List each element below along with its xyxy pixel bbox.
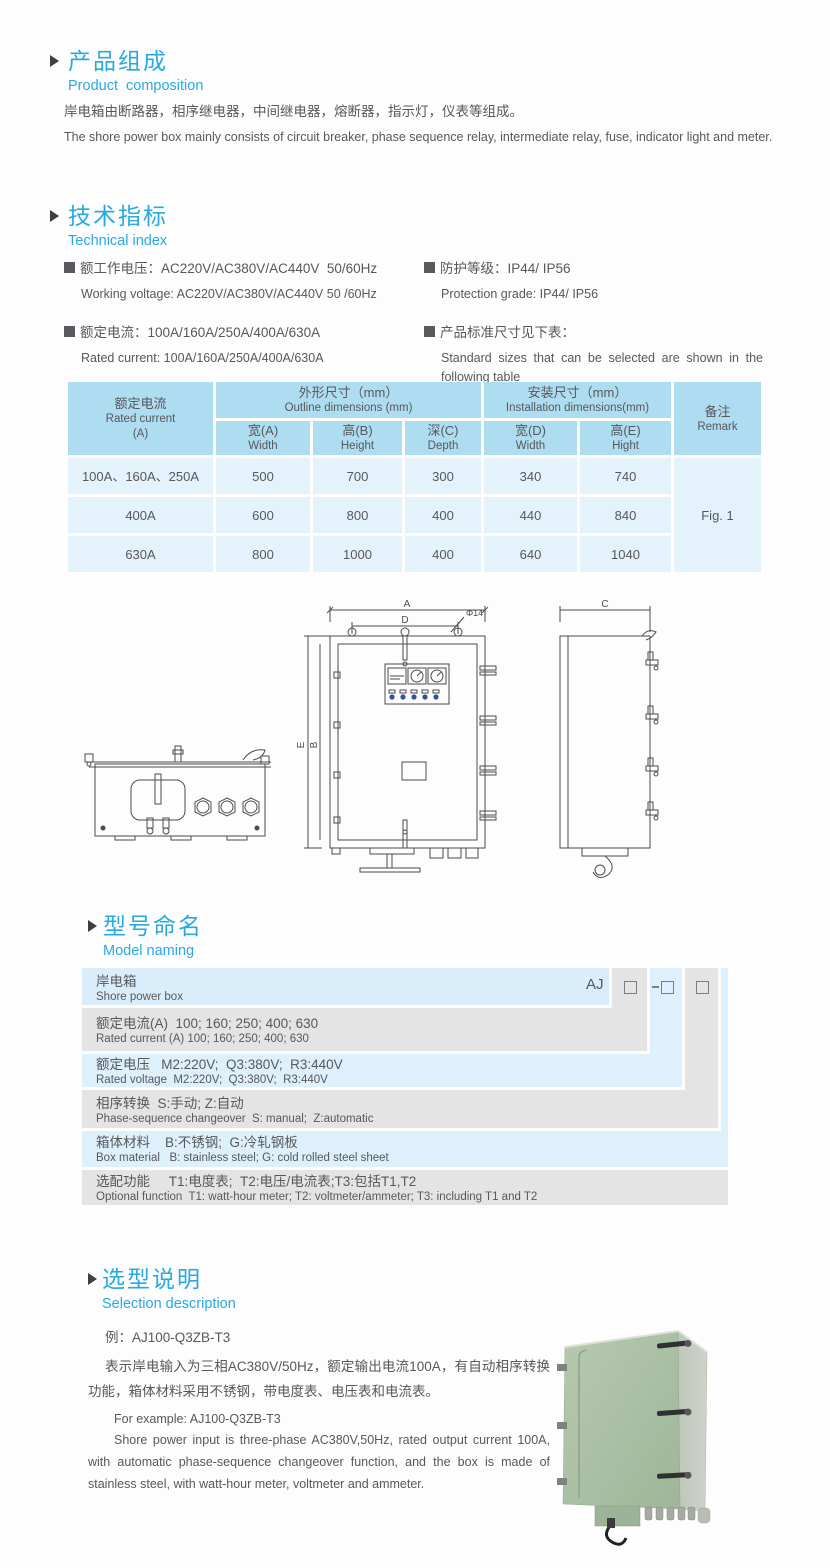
section-title-en: Selection description (102, 1296, 236, 1312)
triangle-right-icon (88, 1273, 97, 1285)
product-photo (555, 1318, 800, 1553)
table-cell: 1040 (580, 536, 671, 572)
subheader-height-b: 高(B) Height (313, 421, 402, 455)
naming-row-optional-function: 选配功能 T1:电度表; T2:电压/电流表;T3:包括T1,T2 Option… (82, 1170, 728, 1205)
table-cell: 640 (484, 536, 577, 572)
model-prefix: AJ (586, 976, 604, 993)
naming-column-strip (721, 968, 728, 1131)
spec-zh: 额工作电压：AC220V/AC380V/AC440V 50/60Hz (80, 257, 377, 277)
table-cell: 800 (313, 497, 402, 533)
section-title-en: Product composition (68, 78, 203, 94)
dim-label-e: E (296, 741, 307, 748)
table-cell: 630A (68, 536, 213, 572)
naming-row-phase-sequence: 相序转换 S:手动; Z:自动 Phase-sequence changeove… (82, 1090, 718, 1128)
table-cell: 100A、160A、250A (68, 458, 213, 494)
table-cell: 440 (484, 497, 577, 533)
table-cell: 400 (405, 536, 481, 572)
naming-row-rated-current: 额定电流(A) 100; 160; 250; 400; 630 Rated cu… (82, 1008, 647, 1051)
section-product-composition: 产品组成 Product composition (50, 48, 203, 94)
table-cell: 700 (313, 458, 402, 494)
dim-label-dia: Φ14 (466, 608, 483, 618)
catalog-page: 产品组成 Product composition 岸电箱由断路器，相序继电器，中… (0, 0, 830, 1568)
spec-zh: 防护等级：IP44/ IP56 (440, 257, 571, 277)
naming-row-rated-voltage: 额定电压 M2:220V; Q3:380V; R3:440V Rated vol… (82, 1054, 682, 1087)
square-bullet-icon (64, 326, 75, 337)
composition-paragraph-zh: 岸电箱由断路器，相序继电器，中间继电器，熔断器，指示灯，仪表等组成。 (64, 102, 794, 122)
section-title-zh: 产品组成 (68, 48, 203, 74)
empty-square-box-icon (661, 981, 674, 994)
table-cell-remark: Fig. 1 (674, 458, 761, 572)
dimension-table: 额定电流 Rated current (A) 外形尺寸（mm） Outline … (68, 382, 761, 572)
empty-square-box-icon (624, 981, 637, 994)
bottom-foot (698, 1508, 710, 1523)
spec-en: Rated current: 100A/160A/250A/400A/630A (81, 349, 422, 368)
empty-square-box-icon (696, 981, 709, 994)
header-en: Remark (697, 420, 737, 435)
spec-en: Protection grade: IP44/ IP56 (441, 285, 769, 304)
spec-zh: 额定电流：100A/160A/250A/400A/630A (80, 321, 320, 341)
triangle-right-icon (50, 55, 59, 67)
spec-item: 额工作电压：AC220V/AC380V/AC440V 50/60Hz Worki… (64, 257, 422, 304)
table-cell: 400 (405, 497, 481, 533)
dim-label-a: A (404, 599, 411, 610)
table-cell: 840 (580, 497, 671, 533)
triangle-right-icon (88, 920, 97, 932)
table-cell: 1000 (313, 536, 402, 572)
selection-paragraph-en: Shore power input is three-phase AC380V,… (88, 1429, 550, 1495)
header-installation-dimensions: 安装尺寸（mm） Installation dimensions(mm) (484, 382, 671, 418)
spec-item: 额定电流：100A/160A/250A/400A/630A Rated curr… (64, 321, 422, 368)
dim-label-b: B (309, 741, 320, 748)
triangle-right-icon (50, 210, 59, 222)
square-bullet-icon (424, 326, 435, 337)
section-title-en: Technical index (68, 233, 168, 249)
table-cell: 400A (68, 497, 213, 533)
model-example-zh: 例：AJ100-Q3ZB-T3 (105, 1326, 558, 1346)
composition-paragraph-en: The shore power box mainly consists of c… (64, 128, 794, 146)
table-cell: 300 (405, 458, 481, 494)
section-title-en: Model naming (103, 943, 203, 959)
spec-item: 防护等级：IP44/ IP56 Protection grade: IP44/ … (424, 257, 769, 304)
box-front-face (563, 1331, 680, 1509)
square-bullet-icon (424, 262, 435, 273)
spec-en: Working voltage: AC220V/AC380V/AC440V 50… (81, 285, 422, 304)
header-en: Rated current (106, 412, 176, 427)
section-model-naming: 型号命名 Model naming (88, 913, 203, 959)
table-cell: 600 (216, 497, 310, 533)
section-technical-index: 技术指标 Technical index (50, 203, 168, 249)
dash-icon (652, 986, 659, 988)
square-bullet-icon (64, 262, 75, 273)
subheader-width-a: 宽(A) Width (216, 421, 310, 455)
spec-item: 产品标准尺寸见下表： Standard sizes that can be se… (424, 321, 769, 387)
table-cell: 340 (484, 458, 577, 494)
cable-hook (606, 1526, 626, 1544)
header-en: Installation dimensions(mm) (506, 401, 649, 416)
section-title-zh: 选型说明 (102, 1266, 236, 1292)
section-selection-description: 选型说明 Selection description 例：AJ100-Q3ZB-… (88, 1266, 558, 1495)
selection-paragraph-zh: 表示岸电输入为三相AC380V/50Hz，额定输出电流100A，有自动相序转换功… (88, 1354, 550, 1404)
table-cell: 800 (216, 536, 310, 572)
table-cell: 740 (580, 458, 671, 494)
header-zh: 额定电流 (114, 395, 166, 412)
cable-clamp (607, 1518, 615, 1528)
naming-row-product: 岸电箱 Shore power box (82, 968, 609, 1005)
model-naming-table: 岸电箱 Shore power box AJ 额定电流(A) 100; 160;… (82, 968, 728, 1205)
naming-row-box-material: 箱体材料 B:不锈钢; G:冷轧钢板 Box material B: stain… (82, 1131, 728, 1167)
box-side-face (678, 1331, 707, 1511)
section-title-zh: 技术指标 (68, 203, 168, 229)
subheader-width-d: 宽(D) Width (484, 421, 577, 455)
subheader-depth-c: 深(C) Depth (405, 421, 481, 455)
header-outline-dimensions: 外形尺寸（mm） Outline dimensions (mm) (216, 382, 481, 418)
header-zh: 备注 (704, 403, 730, 420)
technical-list-left: 额工作电压：AC220V/AC380V/AC440V 50/60Hz Worki… (64, 257, 422, 385)
outline-drawing: A D Φ14 E B (78, 588, 768, 883)
subheader-hight-e: 高(E) Hight (580, 421, 671, 455)
bottom-pedestal (595, 1506, 640, 1526)
header-remark: 备注 Remark (674, 382, 761, 455)
section-title-zh: 型号命名 (103, 913, 203, 939)
header-en: Outline dimensions (mm) (285, 401, 413, 416)
model-example-en: For example: AJ100-Q3ZB-T3 (114, 1412, 558, 1426)
table-cell: 500 (216, 458, 310, 494)
spec-zh: 产品标准尺寸见下表： (440, 321, 575, 341)
header-rated-current: 额定电流 Rated current (A) (68, 382, 213, 455)
header-zh: 外形尺寸（mm） (299, 384, 399, 401)
dim-label-c: C (601, 599, 608, 610)
header-unit: (A) (133, 427, 148, 442)
dim-label-d: D (401, 615, 408, 626)
header-zh: 安装尺寸（mm） (528, 384, 628, 401)
